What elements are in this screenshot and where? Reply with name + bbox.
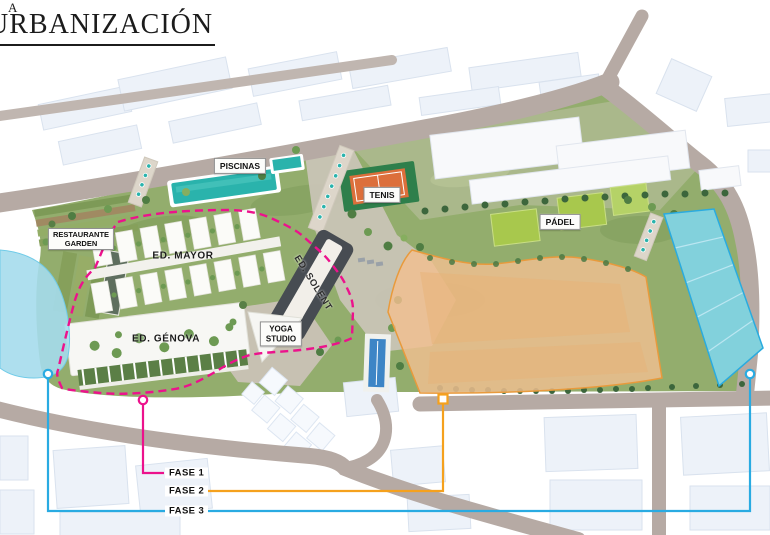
label-ed-mayor: ED. MAYOR (152, 251, 213, 262)
masterplan-page: A URBANIZACIÓN PISCINAS TENIS PÁDEL REST… (0, 0, 770, 535)
label-tenis: TENIS (363, 187, 400, 203)
page-title: URBANIZACIÓN (0, 9, 215, 46)
label-restaurante-garden: RESTAURANTE GARDEN (48, 228, 114, 250)
legend-fase-3: FASE 3 (165, 506, 208, 517)
label-yoga-studio: YOGA STUDIO (260, 321, 302, 346)
label-ed-genova: ED. GÉNOVA (132, 334, 200, 345)
phase2-zone (388, 250, 662, 393)
label-restaurante-line2: GARDEN (53, 239, 109, 248)
lap-pool (363, 334, 391, 393)
label-restaurante-line1: RESTAURANTE (53, 230, 109, 239)
label-piscinas: PISCINAS (214, 158, 266, 174)
label-yoga-line1: YOGA (266, 324, 296, 334)
masterplan-svg (0, 0, 770, 535)
label-yoga-line2: STUDIO (266, 334, 296, 344)
legend-fase-1: FASE 1 (165, 468, 208, 479)
legend-fase-2: FASE 2 (165, 486, 208, 497)
label-padel: PÁDEL (540, 214, 581, 230)
